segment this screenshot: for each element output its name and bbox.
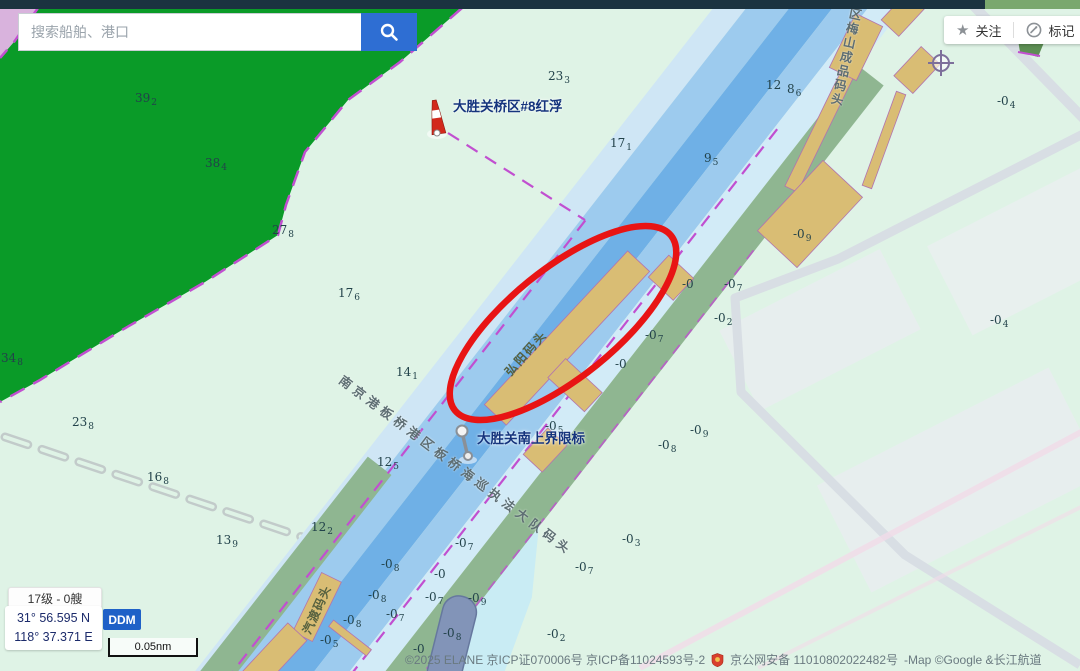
search-icon — [379, 22, 399, 42]
star-icon: ★ — [956, 21, 969, 39]
coord-format-button[interactable]: DDM — [103, 609, 141, 630]
cursor-coordinates: 31° 56.595 N 118° 37.371 E — [5, 606, 102, 650]
map-credit-text: -Map ©Google &长江航道 — [904, 651, 1042, 668]
police-filing-text: 京公网安备 11010802022482号 — [730, 651, 898, 668]
map-attribution: ©2025 ELANE 京ICP证070006号 京ICP备11024593号-… — [405, 651, 1080, 668]
search-input[interactable] — [18, 13, 361, 51]
top-header-strip — [0, 0, 985, 9]
tag-icon — [1026, 22, 1042, 38]
map-scale-bar: 0.05nm — [108, 638, 198, 657]
copyright-text: ©2025 ELANE 京ICP证070006号 京ICP备11024593号-… — [405, 651, 705, 668]
mark-button[interactable]: 标记 — [1014, 16, 1080, 44]
follow-mark-toolbar: ★ 关注 标记 — [944, 16, 1080, 44]
mark-label: 标记 — [1048, 21, 1074, 40]
ship-map-app: 233128639238417195278-09348176-0-07-02-0… — [0, 0, 1080, 671]
longitude-value: 118° 37.371 E — [14, 628, 92, 647]
search-bar — [18, 13, 417, 51]
latitude-value: 31° 56.595 N — [17, 609, 90, 628]
follow-button[interactable]: ★ 关注 — [944, 16, 1013, 44]
police-badge-icon — [711, 653, 724, 667]
search-button[interactable] — [361, 13, 417, 51]
top-strip-green-segment — [985, 0, 1080, 9]
follow-label: 关注 — [975, 21, 1001, 40]
nautical-chart-map[interactable] — [0, 0, 1080, 671]
